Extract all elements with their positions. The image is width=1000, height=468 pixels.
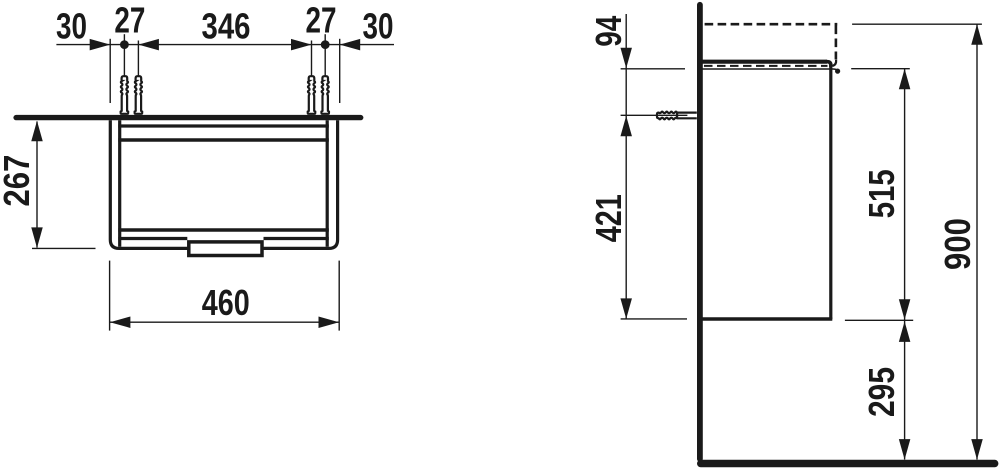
svg-text:295: 295: [861, 367, 902, 417]
svg-text:346: 346: [202, 6, 251, 47]
svg-text:30: 30: [363, 5, 394, 46]
svg-text:27: 27: [114, 0, 145, 40]
svg-text:515: 515: [861, 169, 902, 218]
svg-text:421: 421: [588, 194, 629, 242]
svg-text:94: 94: [588, 16, 629, 47]
svg-text:27: 27: [306, 0, 337, 40]
svg-text:460: 460: [202, 282, 250, 323]
svg-text:267: 267: [0, 155, 37, 207]
svg-text:900: 900: [937, 218, 978, 270]
svg-text:30: 30: [56, 5, 87, 46]
